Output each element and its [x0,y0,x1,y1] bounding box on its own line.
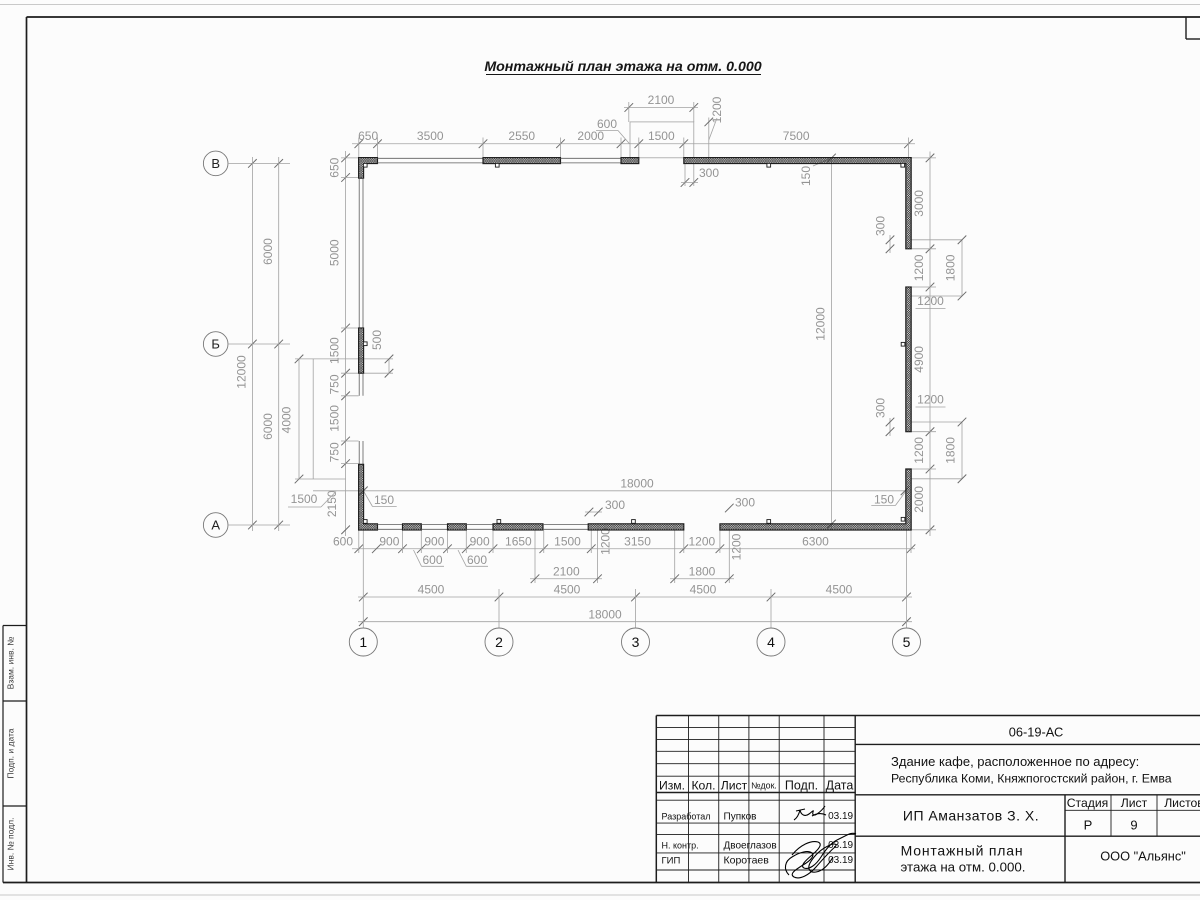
svg-text:Взам. инв. №: Взам. инв. № [6,637,16,690]
svg-text:6000: 6000 [261,413,275,440]
svg-text:1200: 1200 [912,437,926,464]
svg-text:650: 650 [328,157,342,177]
svg-text:Б: Б [211,337,220,352]
svg-text:2000: 2000 [912,486,926,513]
svg-text:Изм.: Изм. [659,779,685,793]
svg-text:18000: 18000 [620,477,654,491]
svg-text:300: 300 [874,398,888,418]
svg-text:2000: 2000 [577,129,604,143]
svg-text:7500: 7500 [783,129,810,143]
svg-text:1800: 1800 [689,564,716,578]
svg-text:№док.: №док. [751,781,777,791]
svg-text:4500: 4500 [826,583,853,597]
svg-text:650: 650 [358,129,378,143]
svg-text:600: 600 [597,117,617,131]
svg-text:А: А [211,518,220,533]
svg-text:3: 3 [632,634,640,650]
svg-text:12000: 12000 [235,355,249,389]
svg-text:1800: 1800 [944,437,958,464]
svg-text:1500: 1500 [648,129,675,143]
svg-text:ООО "Альянс": ООО "Альянс" [1100,849,1186,864]
svg-text:300: 300 [605,498,625,512]
svg-text:4500: 4500 [554,583,581,597]
svg-text:Р: Р [1084,818,1093,833]
svg-text:4900: 4900 [912,346,926,373]
svg-text:2: 2 [495,634,503,650]
svg-text:Разработал: Разработал [662,812,711,822]
svg-text:600: 600 [333,534,353,548]
svg-text:1200: 1200 [710,96,724,123]
svg-text:5000: 5000 [328,239,342,266]
svg-text:600: 600 [422,553,442,567]
svg-text:1200: 1200 [912,254,926,281]
svg-text:4: 4 [767,634,775,650]
svg-text:Кол.: Кол. [691,779,715,793]
svg-text:Лист: Лист [1121,796,1148,810]
svg-text:4500: 4500 [690,583,717,597]
svg-text:Монтажный план этажа на отм. 0: Монтажный план этажа на отм. 0.000 [484,59,761,75]
svg-text:2100: 2100 [553,564,580,578]
svg-text:Монтажный план: Монтажный план [901,843,1024,859]
svg-text:1200: 1200 [599,528,613,555]
svg-text:1650: 1650 [505,534,532,548]
svg-text:9: 9 [1130,818,1137,833]
svg-text:900: 900 [379,534,399,548]
svg-text:03.19: 03.19 [828,811,853,822]
svg-text:1500: 1500 [554,534,581,548]
svg-text:6300: 6300 [802,534,829,548]
svg-text:Стадия: Стадия [1067,796,1109,810]
svg-text:Листов: Листов [1164,796,1200,810]
svg-text:900: 900 [470,534,490,548]
svg-text:Республика Коми, Княжпогостски: Республика Коми, Княжпогостский район, г… [891,772,1172,786]
svg-text:750: 750 [328,374,342,394]
svg-text:300: 300 [699,166,719,180]
svg-text:Дата: Дата [826,779,854,793]
svg-text:Подп.: Подп. [785,779,818,793]
svg-text:4500: 4500 [418,583,445,597]
svg-text:1500: 1500 [328,405,342,432]
svg-text:1200: 1200 [917,393,944,407]
svg-text:600: 600 [467,553,487,567]
svg-text:1200: 1200 [730,533,744,560]
svg-text:18000: 18000 [588,607,622,621]
svg-text:5: 5 [903,634,911,650]
svg-text:300: 300 [735,496,755,510]
svg-text:4000: 4000 [280,406,294,433]
svg-text:3150: 3150 [624,534,651,548]
svg-text:Пупков: Пупков [724,812,757,823]
svg-text:Коротаев: Коротаев [724,855,770,867]
svg-text:03.19: 03.19 [828,855,853,866]
svg-text:1: 1 [359,634,367,650]
svg-text:Здание кафе, расположенное по: Здание кафе, расположенное по адресу: [891,754,1139,769]
svg-text:1500: 1500 [328,337,342,364]
svg-text:Н. контр.: Н. контр. [662,841,699,851]
svg-text:150: 150 [799,166,813,186]
svg-text:2100: 2100 [648,93,675,107]
svg-text:6000: 6000 [261,238,275,265]
svg-text:1200: 1200 [917,294,944,308]
svg-text:Лист: Лист [721,779,748,793]
svg-text:этажа на отм. 0.000.: этажа на отм. 0.000. [901,860,1026,875]
svg-text:300: 300 [874,216,888,236]
svg-text:ГИП: ГИП [662,856,681,867]
svg-text:750: 750 [328,442,342,462]
svg-text:500: 500 [370,330,384,350]
svg-text:3500: 3500 [417,129,444,143]
svg-text:2550: 2550 [508,129,535,143]
svg-text:900: 900 [424,534,444,548]
svg-text:1800: 1800 [944,254,958,281]
svg-text:Инв. № подл.: Инв. № подл. [6,818,16,871]
svg-text:06-19-АС: 06-19-АС [1009,725,1064,740]
svg-text:3000: 3000 [912,190,926,217]
svg-text:Двоеглазов: Двоеглазов [724,841,777,852]
svg-text:12000: 12000 [814,307,828,341]
svg-text:Подп. и дата: Подп. и дата [6,728,16,778]
svg-text:150: 150 [374,493,394,507]
svg-text:1200: 1200 [688,534,715,548]
svg-text:1500: 1500 [291,492,318,506]
svg-text:ИП Аманзатов З. Х.: ИП Аманзатов З. Х. [903,808,1039,824]
svg-text:150: 150 [874,493,894,507]
svg-text:2150: 2150 [325,490,339,517]
svg-text:В: В [211,156,220,171]
